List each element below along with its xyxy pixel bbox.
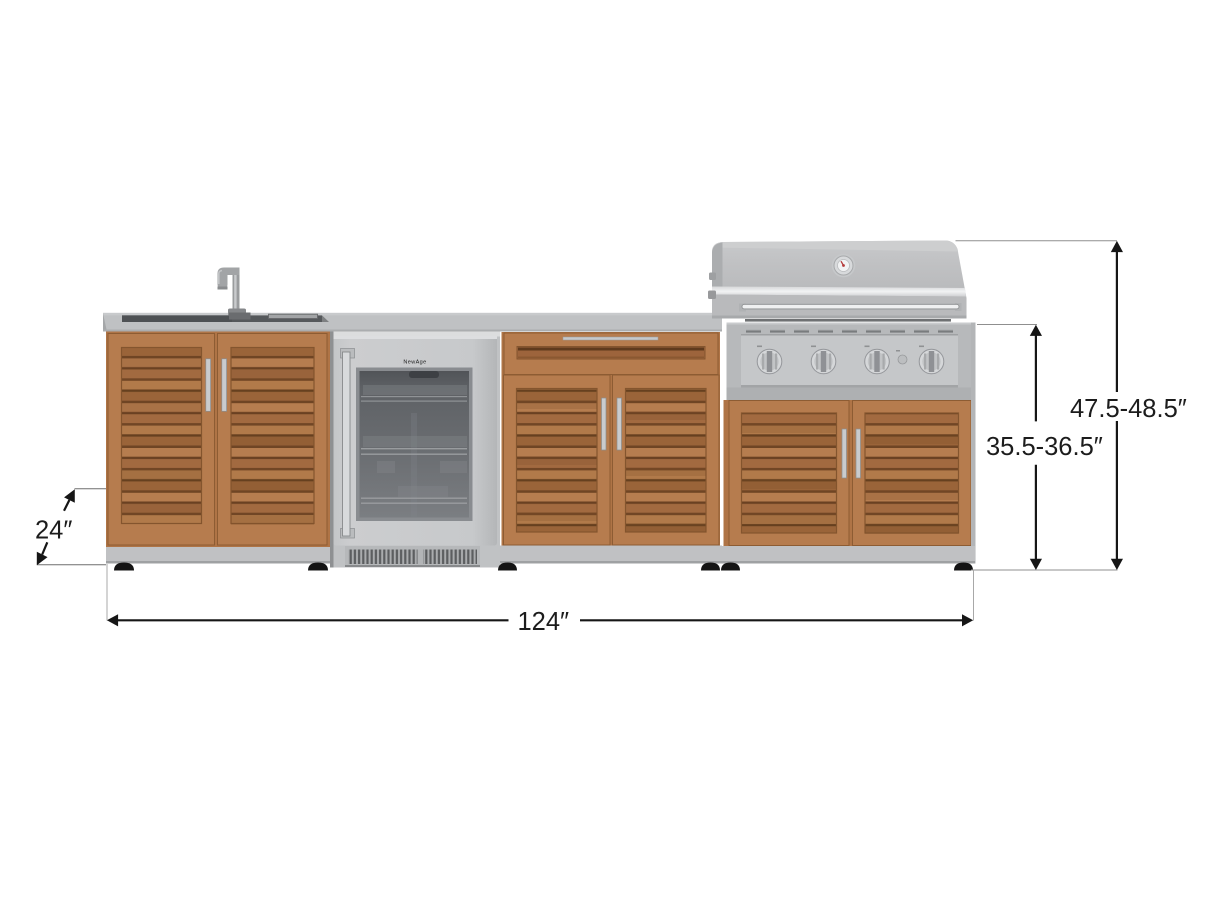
svg-text:124″: 124″ [518, 608, 570, 636]
svg-text:35.5-36.5″: 35.5-36.5″ [986, 433, 1103, 461]
svg-text:NewAge: NewAge [403, 360, 426, 366]
svg-text:47.5-48.5″: 47.5-48.5″ [1070, 395, 1187, 423]
svg-text:24″: 24″ [35, 517, 72, 545]
